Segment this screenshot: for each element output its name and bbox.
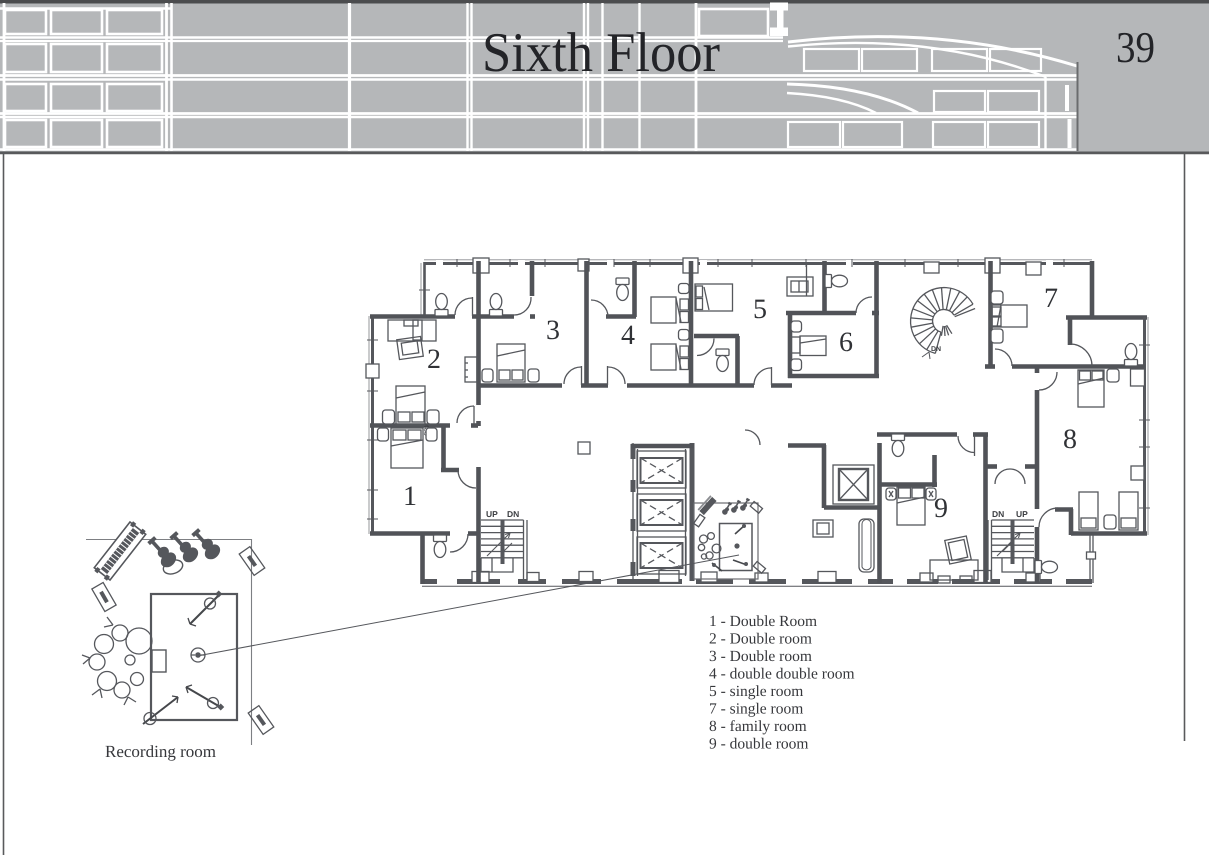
svg-text:7 - single room: 7 - single room [709,701,803,718]
svg-text:9 - double room: 9 - double room [709,736,808,753]
svg-text:8: 8 [1063,424,1077,455]
svg-text:2: 2 [427,344,441,375]
svg-text:4 - double double room: 4 - double double room [709,666,855,683]
svg-text:UP: UP [486,509,498,519]
svg-text:39: 39 [1116,23,1155,72]
svg-text:2 - Double room: 2 - Double room [709,631,812,648]
svg-text:DN: DN [507,509,519,519]
svg-text:5: 5 [753,294,767,325]
svg-text:1: 1 [403,481,417,512]
svg-text:DN: DN [931,346,941,353]
svg-text:5 - single room: 5 - single room [709,683,803,700]
svg-text:3 - Double room: 3 - Double room [709,648,812,665]
svg-text:6: 6 [839,327,853,358]
svg-text:1 - Double Room: 1 - Double Room [709,613,817,630]
svg-text:4: 4 [621,320,635,351]
svg-text:7: 7 [1044,283,1058,314]
svg-text:UP: UP [1016,509,1028,519]
svg-text:8 - family room: 8 - family room [709,718,807,735]
svg-text:Sixth Floor: Sixth Floor [482,22,720,84]
svg-text:3: 3 [546,315,560,346]
svg-text:Recording room: Recording room [105,742,216,761]
svg-text:DN: DN [992,509,1004,519]
